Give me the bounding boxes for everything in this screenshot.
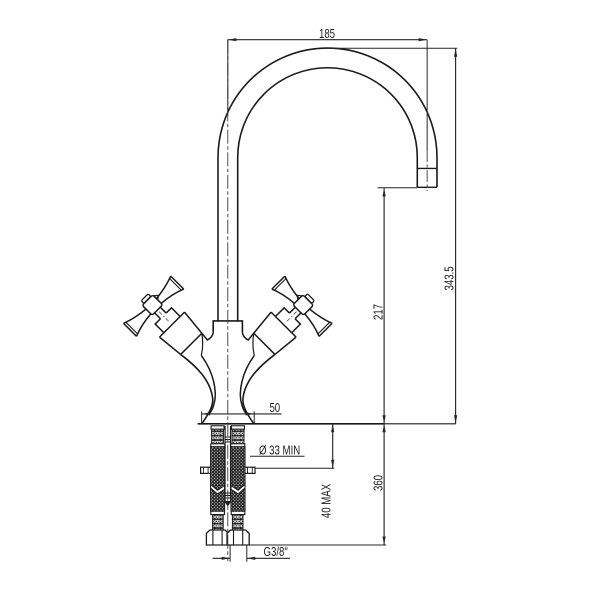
svg-text:343.5: 343.5 — [443, 266, 457, 290]
svg-text:50: 50 — [269, 402, 280, 416]
svg-text:360: 360 — [372, 475, 386, 491]
svg-text:G3/8ʺ: G3/8ʺ — [264, 546, 288, 560]
svg-text:40 MAX: 40 MAX — [320, 484, 334, 518]
svg-text:185: 185 — [319, 28, 335, 42]
svg-text:217: 217 — [372, 304, 386, 320]
svg-text:Ø 33 MIN: Ø 33 MIN — [259, 444, 300, 458]
